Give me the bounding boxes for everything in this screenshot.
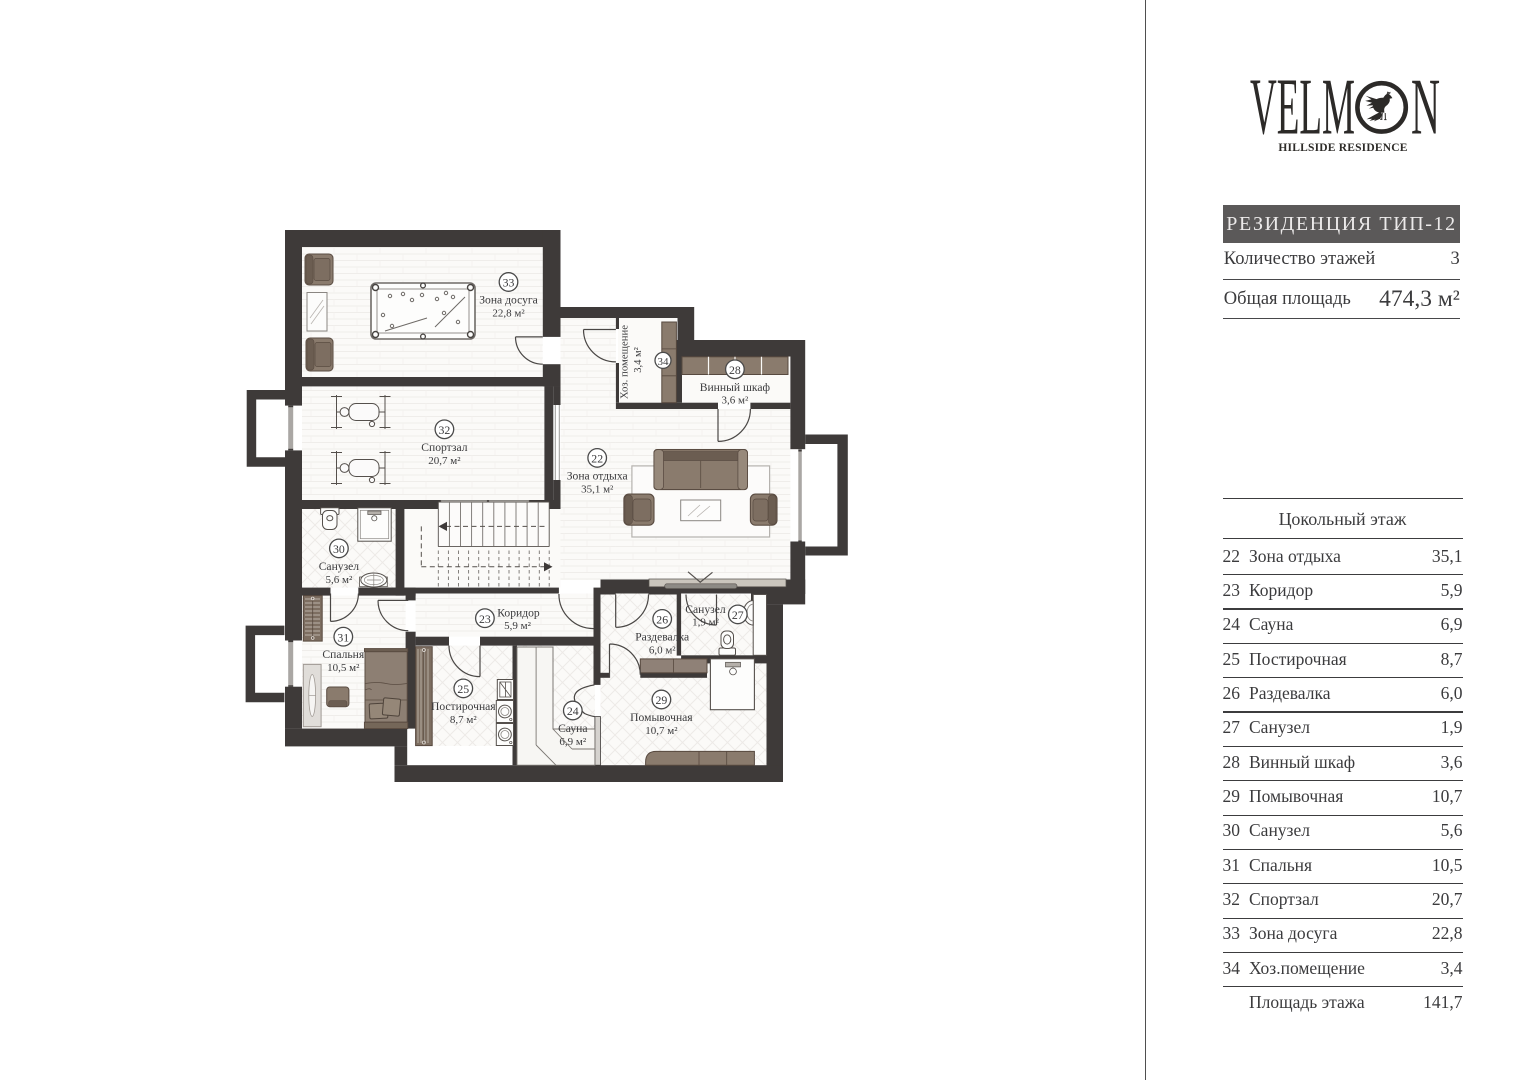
svg-text:29: 29 xyxy=(656,693,668,707)
svg-text:10,5 м²: 10,5 м² xyxy=(327,662,360,674)
svg-text:Сауна: Сауна xyxy=(558,722,587,735)
svg-text:24: 24 xyxy=(567,704,579,718)
svg-text:Санузел: Санузел xyxy=(319,560,360,573)
svg-text:Помывочная: Помывочная xyxy=(630,711,693,724)
svg-text:Раздевалка: Раздевалка xyxy=(635,630,689,643)
svg-text:Спортзал: Спортзал xyxy=(421,441,467,454)
svg-text:6,9 м²: 6,9 м² xyxy=(559,736,586,748)
svg-text:Винный шкаф: Винный шкаф xyxy=(700,381,771,394)
svg-text:5,9 м²: 5,9 м² xyxy=(504,620,531,632)
svg-text:35,1 м²: 35,1 м² xyxy=(581,483,614,495)
svg-text:27: 27 xyxy=(732,608,744,622)
svg-text:31: 31 xyxy=(337,630,349,644)
svg-text:30: 30 xyxy=(333,542,345,556)
svg-text:22: 22 xyxy=(591,452,603,466)
svg-text:3,6 м²: 3,6 м² xyxy=(722,394,749,406)
svg-text:Зона отдыха: Зона отдыха xyxy=(567,469,628,482)
svg-text:32: 32 xyxy=(439,423,451,437)
svg-text:Постирочная: Постирочная xyxy=(431,700,496,713)
svg-text:5,6 м²: 5,6 м² xyxy=(326,574,353,586)
svg-text:33: 33 xyxy=(503,276,515,290)
svg-text:N: N xyxy=(1411,70,1440,152)
svg-text:Спальня: Спальня xyxy=(322,648,364,661)
svg-text:Хоз. помещение: Хоз. помещение xyxy=(619,325,631,399)
svg-text:20,7 м²: 20,7 м² xyxy=(428,455,461,467)
svg-text:26: 26 xyxy=(656,613,668,627)
svg-text:1,9 м²: 1,9 м² xyxy=(692,617,719,629)
svg-text:Зона досуга: Зона досуга xyxy=(479,294,538,307)
svg-text:3,4 м²: 3,4 м² xyxy=(633,347,644,373)
svg-text:34: 34 xyxy=(658,356,670,368)
svg-text:6,0 м²: 6,0 м² xyxy=(649,644,676,656)
svg-text:25: 25 xyxy=(457,682,469,696)
svg-text:23: 23 xyxy=(479,612,491,626)
svg-text:VELM: VELM xyxy=(1250,70,1355,152)
svg-text:10,7 м²: 10,7 м² xyxy=(645,725,678,737)
svg-text:Санузел: Санузел xyxy=(685,603,726,616)
svg-text:22,8 м²: 22,8 м² xyxy=(492,308,525,320)
svg-text:Коридор: Коридор xyxy=(497,607,540,620)
svg-text:8,7 м²: 8,7 м² xyxy=(450,714,477,726)
svg-text:28: 28 xyxy=(729,363,741,377)
